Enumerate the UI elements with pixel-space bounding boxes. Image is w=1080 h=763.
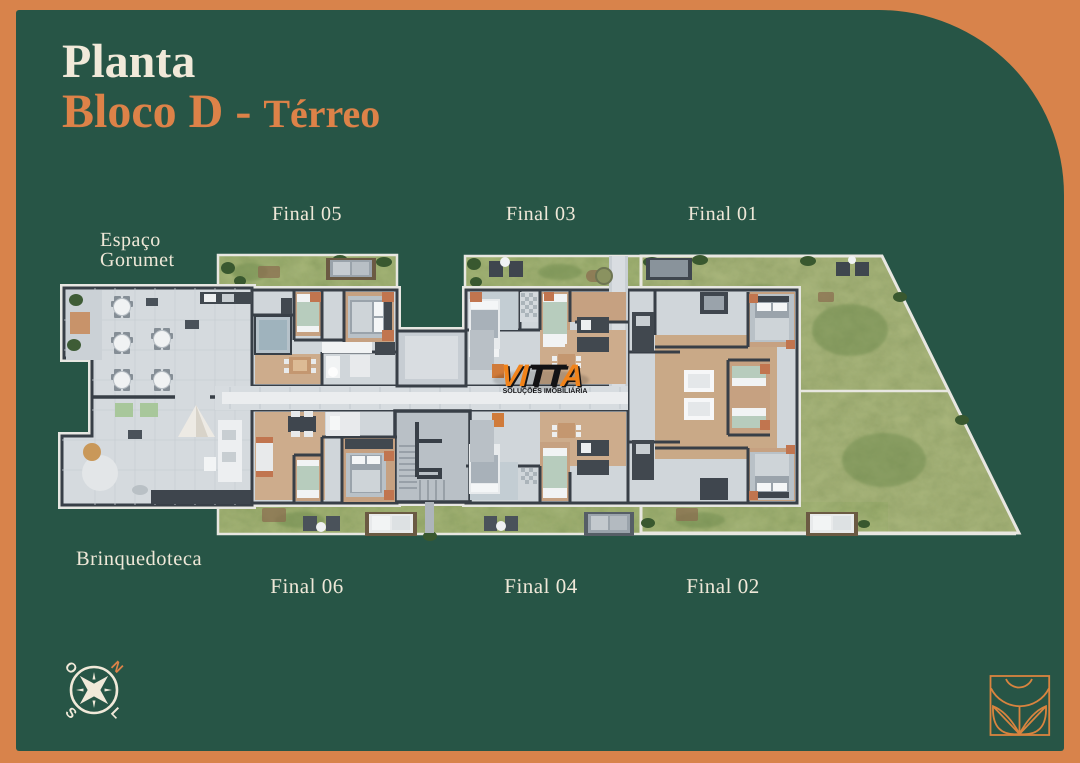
svg-text:SOLUÇÕES IMOBILIÁRIA: SOLUÇÕES IMOBILIÁRIA	[503, 386, 588, 395]
svg-text:S: S	[62, 704, 80, 722]
